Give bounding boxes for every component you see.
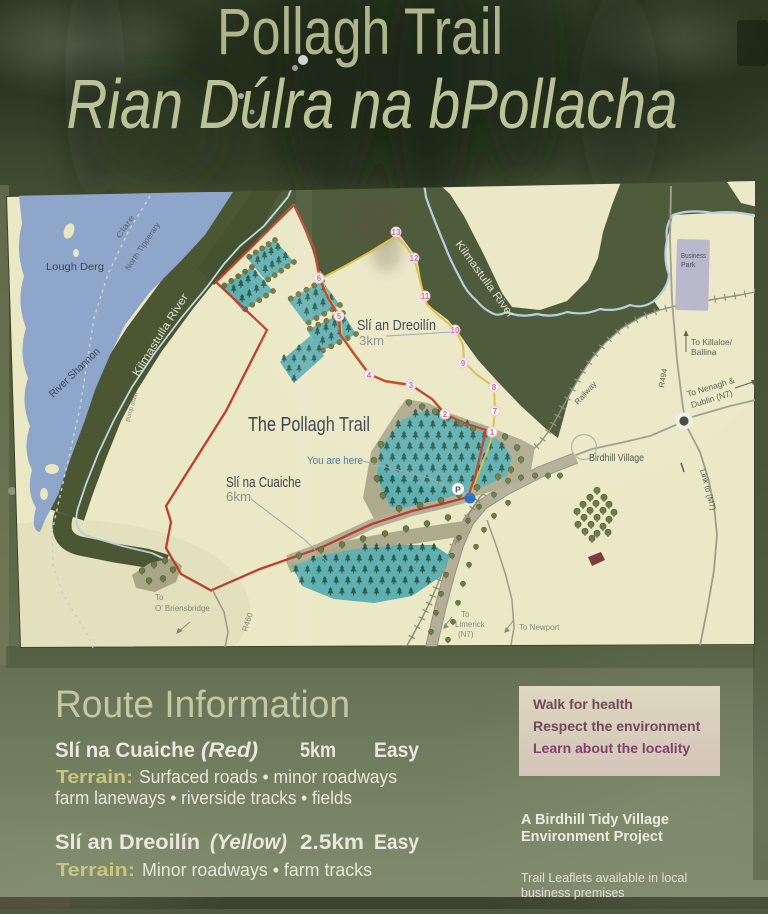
svg-text:Limerick: Limerick	[455, 620, 486, 629]
svg-text:Environment Project: Environment Project	[521, 829, 663, 845]
svg-text:5km: 5km	[300, 738, 336, 762]
svg-text:Terrain:: Terrain:	[56, 767, 133, 787]
svg-text:Minor roadways • farm tracks: Minor roadways • farm tracks	[142, 860, 372, 880]
svg-text:Pollagh Trail: Pollagh Trail	[217, 0, 503, 68]
svg-text:business premises: business premises	[521, 886, 625, 900]
svg-text:Rian Dúlra na bPollacha: Rian Dúlra na bPollacha	[67, 65, 678, 143]
svg-text:Walk for health: Walk for health	[533, 696, 633, 712]
svg-text:Respect the environment: Respect the environment	[533, 718, 701, 734]
svg-text:Trail Leaflets available in lo: Trail Leaflets available in local	[521, 871, 687, 885]
svg-text:To Newport: To Newport	[519, 623, 560, 632]
svg-text:Lough Derg: Lough Derg	[46, 261, 104, 273]
svg-text:Slí an Dreoilín: Slí an Dreoilín	[55, 830, 200, 854]
svg-text:(Yellow): (Yellow)	[210, 830, 287, 854]
svg-text:2.5km: 2.5km	[300, 830, 364, 854]
svg-text:Learn about the locality: Learn about the locality	[533, 740, 690, 756]
svg-text:A Birdhill Tidy Village: A Birdhill Tidy Village	[521, 812, 669, 828]
svg-text:(Red): (Red)	[201, 738, 258, 762]
svg-text:Terrain:: Terrain:	[56, 860, 135, 880]
svg-text:Easy: Easy	[374, 738, 419, 762]
svg-text:Surfaced roads • minor roadway: Surfaced roads • minor roadways	[139, 767, 397, 787]
svg-text:6km: 6km	[226, 489, 251, 504]
svg-text:Route Information: Route Information	[55, 684, 350, 726]
svg-text:farm laneways • riverside trac: farm laneways • riverside tracks • field…	[55, 788, 352, 808]
svg-text:To: To	[461, 610, 470, 619]
svg-text:(N7): (N7)	[458, 630, 474, 639]
svg-text:Easy: Easy	[374, 830, 419, 854]
svg-text:You are here: You are here	[307, 455, 363, 467]
svg-text:Slí na Cuaiche: Slí na Cuaiche	[55, 738, 195, 762]
